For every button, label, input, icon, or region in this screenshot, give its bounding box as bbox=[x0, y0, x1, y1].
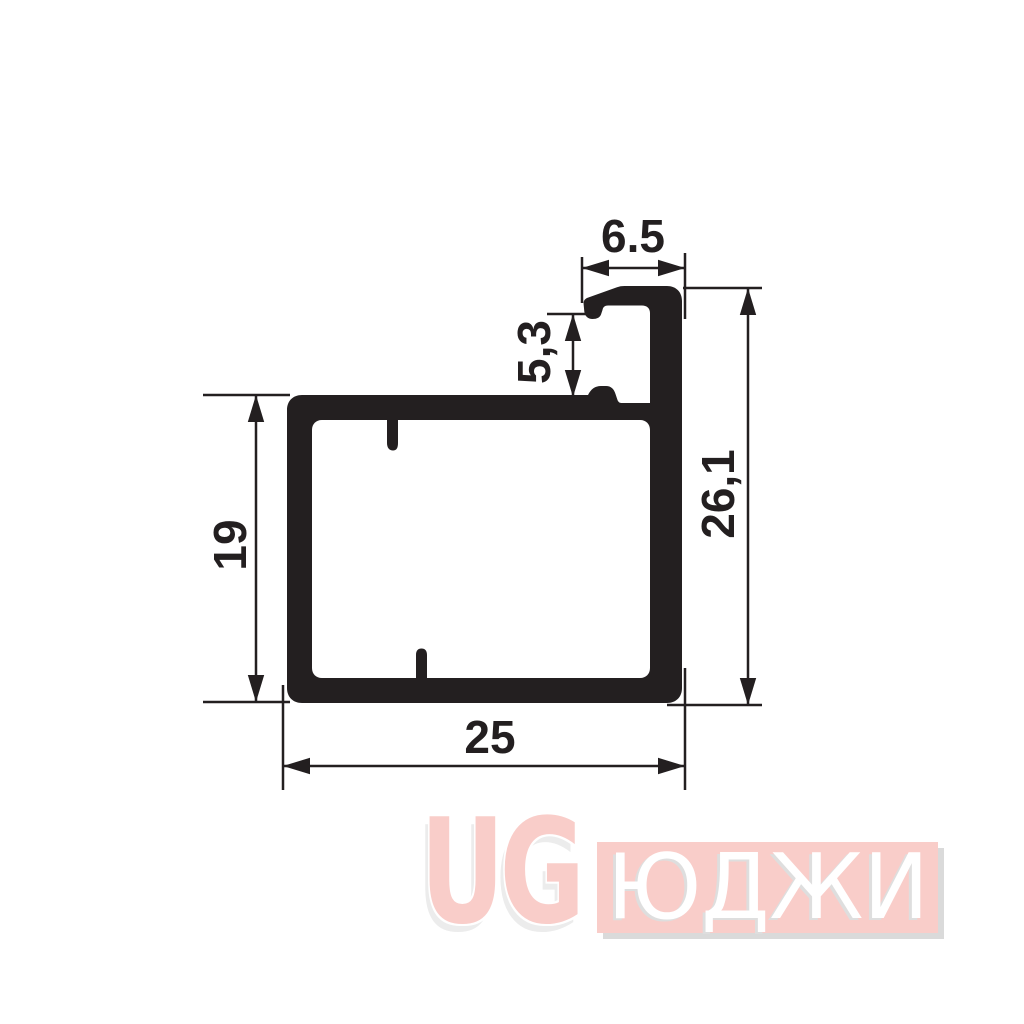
dimension-label-overall-width: 25 bbox=[464, 711, 515, 763]
dimension-slot-gap: 5,3 bbox=[508, 314, 594, 397]
dimension-label-slot-gap: 5,3 bbox=[508, 320, 560, 384]
profile-cross-section bbox=[287, 286, 682, 703]
dimension-inner-height: 19 bbox=[203, 395, 290, 702]
watermark-logo: UG bbox=[420, 800, 580, 945]
watermark-brand-text: ЮДЖИ bbox=[607, 843, 929, 933]
technical-drawing-page: 6.5 5,3 19 26,1 25 bbox=[0, 0, 1024, 1024]
dimension-label-overall-height: 26,1 bbox=[692, 449, 744, 539]
dimension-label-inner-height: 19 bbox=[204, 519, 256, 570]
dimension-label-flange-width: 6.5 bbox=[601, 210, 665, 262]
watermark-badge: ЮДЖИ bbox=[597, 842, 938, 933]
